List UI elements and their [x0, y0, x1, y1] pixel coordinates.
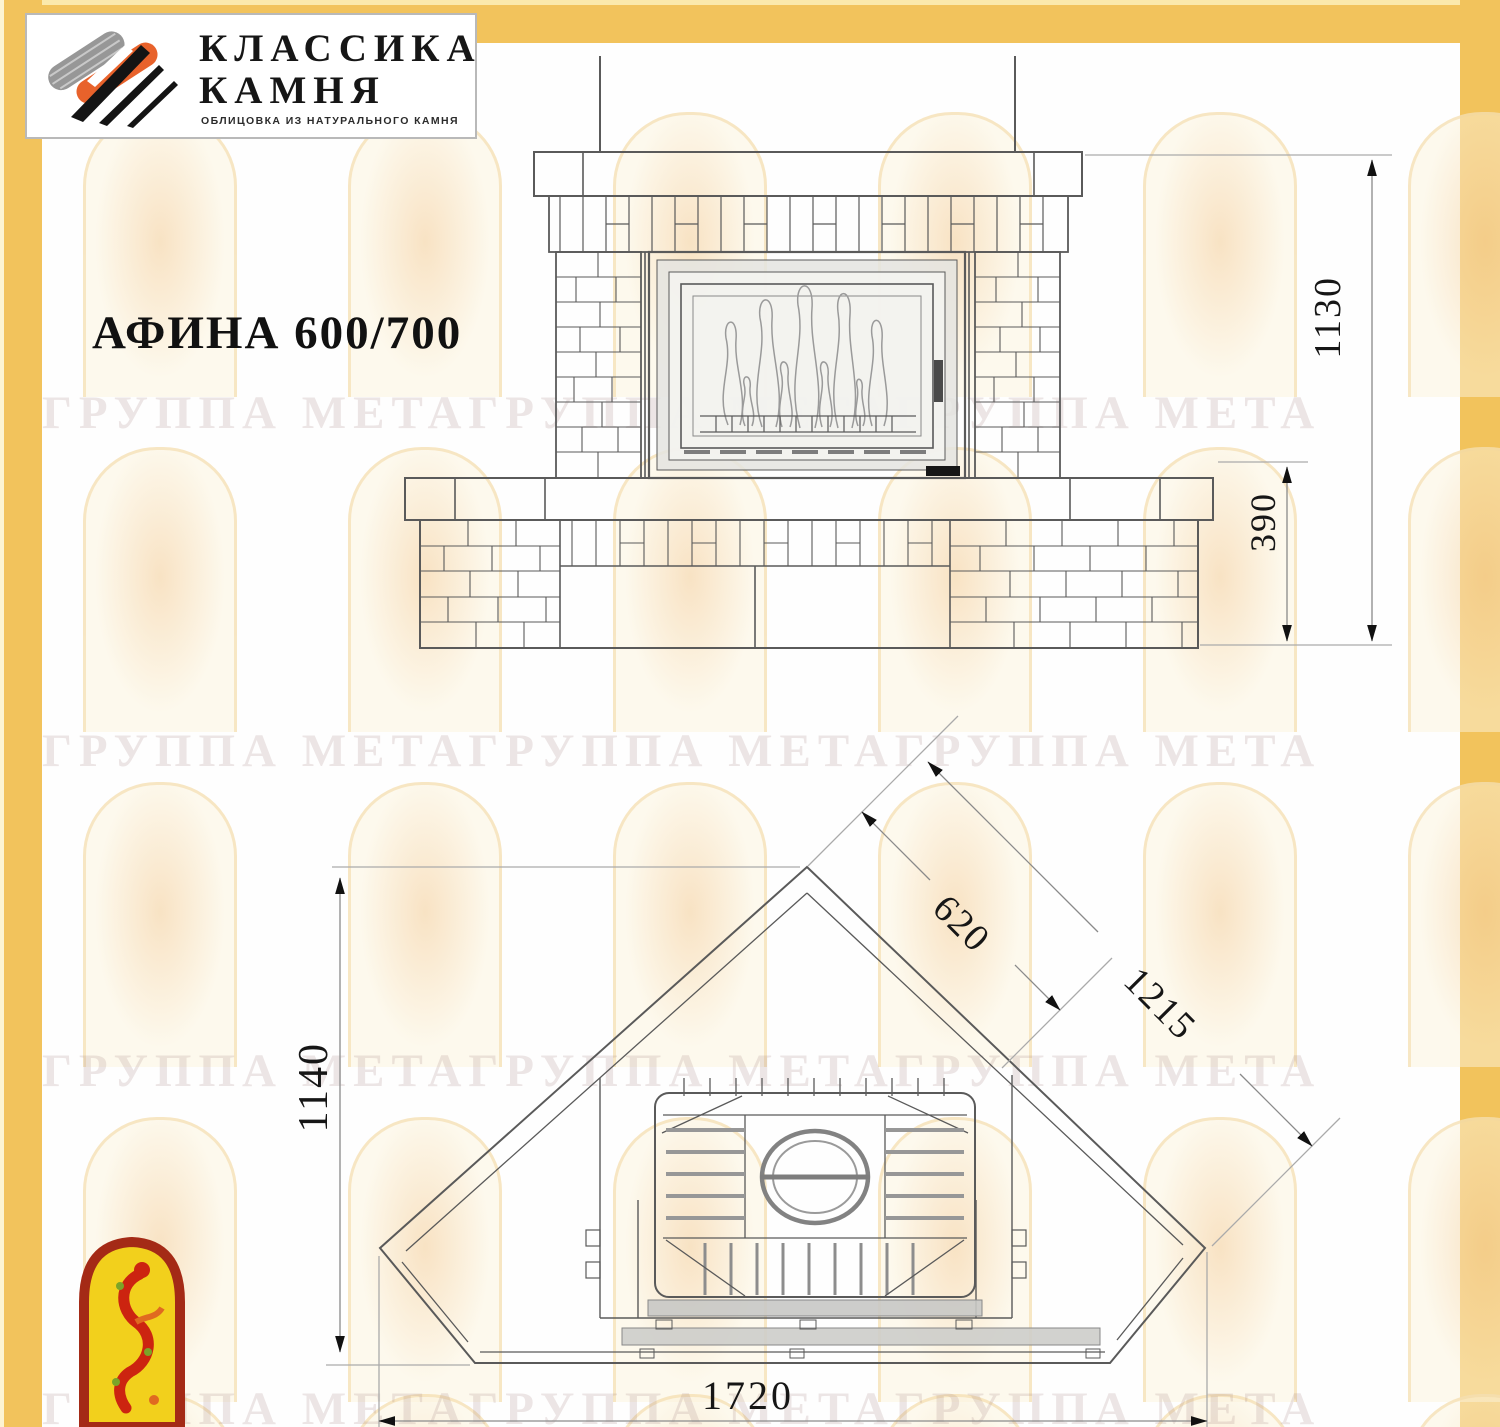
model-title: АФИНА 600/700 [92, 306, 462, 360]
dim-label-front-width: 1720 [702, 1372, 794, 1419]
plan-view [380, 867, 1205, 1363]
plan-dimensions [326, 716, 1340, 1427]
page: ГРУППА МЕТАГРУППА МЕТАГРУППА МЕТА ГРУППА… [0, 0, 1500, 1427]
dim-label-total-height: 1130 [1306, 276, 1350, 359]
firebox-door [649, 252, 965, 478]
company-logo: КЛАССИКА КАМНЯ ОБЛИЦОВКА ИЗ НАТУРАЛЬНОГО… [25, 13, 477, 139]
logo-tagline: ОБЛИЦОВКА ИЗ НАТУРАЛЬНОГО КАМНЯ [201, 115, 459, 127]
base-masonry [420, 520, 1198, 648]
firebox-insert-plan [648, 1078, 982, 1329]
hearth-slab [405, 478, 1213, 520]
flue-pipes [600, 56, 1015, 152]
mantel-shelf [534, 152, 1082, 196]
brand-plate [926, 466, 960, 476]
plan-front-band [622, 1328, 1100, 1345]
technical-drawing [0, 0, 1500, 1427]
logo-text-line1: КЛАССИКА [199, 29, 482, 68]
dim-label-depth: 1140 [290, 1042, 338, 1132]
door-handle [934, 360, 943, 402]
front-view [405, 56, 1213, 648]
meta-firebird-logo [76, 1230, 188, 1427]
right-pillar [975, 252, 1060, 478]
logo-text-line2: КАМНЯ [199, 71, 386, 110]
left-pillar [556, 252, 641, 478]
dim-label-base-height: 390 [1242, 492, 1284, 552]
stone-logo-icon [37, 21, 187, 131]
